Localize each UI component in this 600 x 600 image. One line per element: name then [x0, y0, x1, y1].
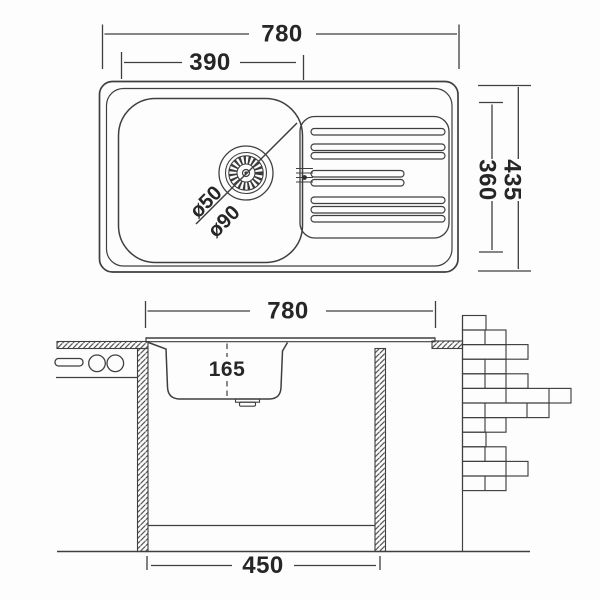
overall-width-label-top: 780: [261, 21, 303, 48]
cabinet-panel-right: [375, 349, 386, 552]
drainer-groove: [311, 216, 445, 223]
sink-bowl-outline: [119, 99, 303, 263]
technical-drawing: ø50 ø90 780 390: [0, 0, 600, 600]
countertop-right-section: [432, 341, 463, 349]
bowl-depth-label: 165: [209, 358, 246, 381]
overall-depth-label: 435: [499, 159, 526, 201]
plan-view: ø50 ø90 780 390: [100, 21, 532, 273]
sink-rim-section: [146, 337, 435, 342]
appliance-knob: [107, 355, 124, 372]
brick: [463, 476, 507, 491]
drainer-groove-short: [311, 180, 404, 187]
sink-diagram-canvas: ø50 ø90 780 390: [0, 0, 600, 600]
dim-cabinet-width: 450: [147, 552, 380, 579]
sink-outer-rim: [100, 82, 459, 273]
drainer-groove: [311, 153, 445, 160]
drainer-grooves: [311, 129, 445, 223]
inner-depth-label: 360: [474, 159, 501, 201]
appliance-front: [55, 355, 137, 378]
brick: [463, 447, 507, 462]
brick: [463, 388, 572, 403]
bowl-width-label: 390: [189, 49, 231, 76]
dim-bowl-width: 390: [122, 49, 304, 80]
dim-inner-depth: 360: [474, 103, 504, 253]
drain-fitting-section: [236, 399, 260, 406]
cabinet-panel-left: [138, 349, 149, 552]
brick: [463, 432, 487, 447]
drainer-groove-short: [311, 171, 404, 178]
brick: [463, 418, 507, 433]
brick: [463, 359, 507, 374]
drainer-groove: [311, 144, 445, 151]
brick: [463, 345, 529, 360]
brick: [463, 330, 507, 345]
dim-bowl-depth: 165: [209, 344, 246, 399]
brick: [463, 316, 487, 331]
brick-wall: [463, 316, 572, 552]
brick: [463, 461, 529, 476]
cabinet-width-label: 450: [242, 552, 284, 579]
overflow-icon: [296, 169, 313, 183]
appliance-knob: [89, 355, 106, 372]
dim-overall-width-section: 780: [146, 298, 436, 329]
brick: [463, 374, 529, 389]
dim-overall-width-top: 780: [103, 21, 460, 70]
brick: [463, 403, 550, 418]
drainer-groove: [311, 129, 445, 136]
drainer-groove: [311, 197, 445, 204]
drainer-groove: [311, 207, 445, 214]
countertop-left-section: [57, 342, 148, 349]
overall-width-label-section: 780: [267, 298, 309, 325]
appliance-handle: [55, 359, 83, 367]
section-view: 780 165: [55, 298, 571, 580]
